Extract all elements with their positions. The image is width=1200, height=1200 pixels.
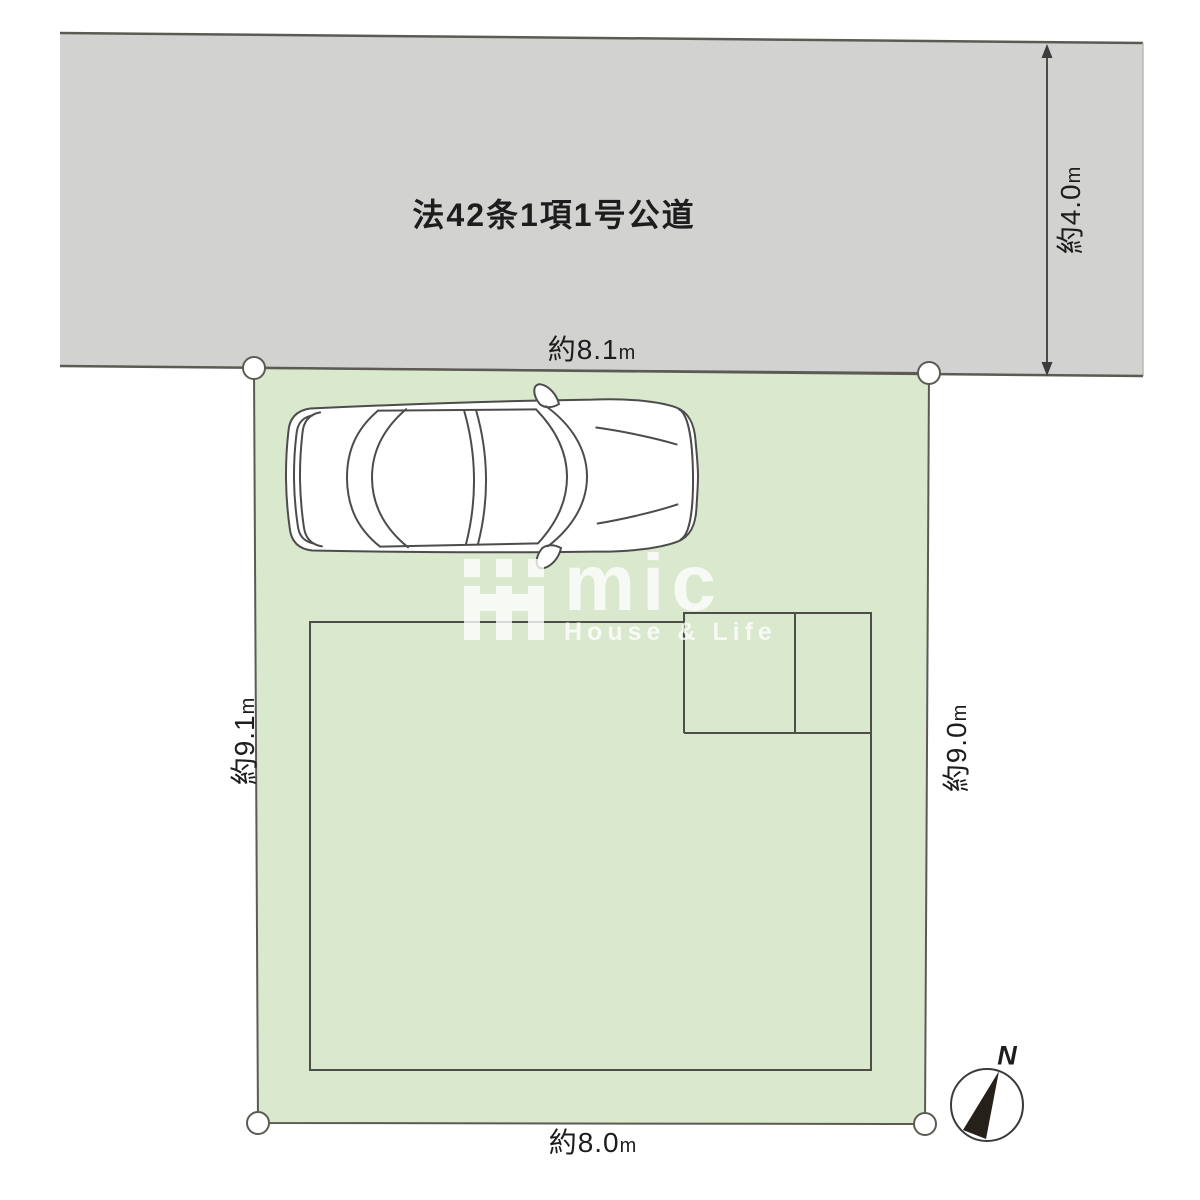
dim-lot-left-unit: m bbox=[237, 697, 259, 715]
dim-lot-top: 約8.1m bbox=[548, 328, 637, 368]
dim-lot-top-unit: m bbox=[619, 342, 637, 364]
dim-lot-top-value: 約8.1 bbox=[548, 334, 619, 365]
dim-lot-right: 約9.0m bbox=[935, 704, 975, 793]
site-plan-canvas bbox=[0, 0, 1200, 1200]
corner-marker bbox=[918, 362, 940, 384]
dim-lot-left-value: 約9.1 bbox=[229, 714, 260, 785]
road-label: 法42条1項1号公道 bbox=[412, 190, 695, 236]
dim-lot-bottom: 約8.0m bbox=[549, 1121, 638, 1161]
corner-marker bbox=[247, 1112, 269, 1134]
compass-north-label: N bbox=[997, 1041, 1017, 1072]
dim-road-width: 約4.0m bbox=[1049, 166, 1089, 255]
dim-lot-right-value: 約9.0 bbox=[941, 721, 972, 792]
site-plan-diagram: mic House & Life 法42条1項1号公道 約8.1m 約4.0m … bbox=[0, 0, 1200, 1200]
compass-icon bbox=[951, 1069, 1023, 1141]
dim-lot-left: 約9.1m bbox=[223, 697, 263, 786]
corner-marker bbox=[914, 1113, 936, 1135]
corner-marker bbox=[243, 357, 265, 379]
dim-road-width-value: 約4.0 bbox=[1055, 183, 1086, 254]
car-top-view-icon bbox=[285, 382, 700, 572]
dim-lot-right-unit: m bbox=[949, 704, 971, 722]
dim-lot-bottom-unit: m bbox=[620, 1135, 638, 1157]
dim-road-width-unit: m bbox=[1063, 166, 1085, 184]
dim-lot-bottom-value: 約8.0 bbox=[549, 1127, 620, 1158]
